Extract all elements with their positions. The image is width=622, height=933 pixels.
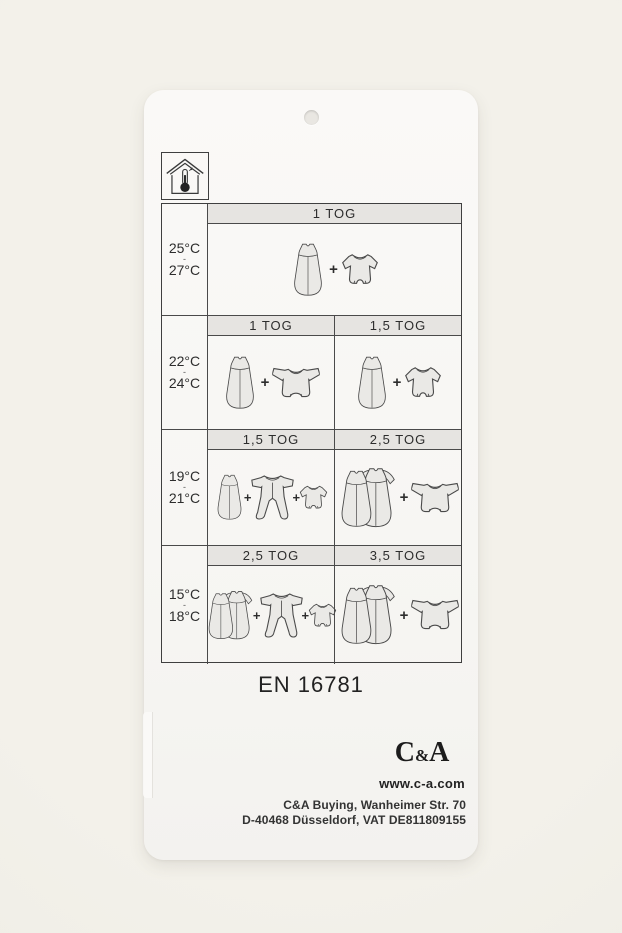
table-row: 15°C-18°C2,5 TOG++3,5 TOG+: [162, 546, 461, 664]
sleepsuit-icon: [251, 473, 294, 522]
tog-cell: 3,5 TOG+: [334, 546, 461, 664]
tog-header: 2,5 TOG: [208, 546, 334, 566]
table-row: 19°C-21°C1,5 TOG++2,5 TOG+: [162, 430, 461, 546]
temperature-range: 25°C-27°C: [162, 204, 208, 315]
sleeping-bag-sleeved-icon: [337, 583, 397, 647]
room-temperature-icon-box: [161, 152, 209, 200]
website-text: www.c-a.com: [379, 776, 465, 791]
tog-header: 1,5 TOG: [335, 316, 461, 336]
sleeping-bag-icon: [354, 352, 390, 414]
plus-sign: +: [400, 607, 409, 624]
bodysuit-short-icon: [299, 484, 328, 511]
tog-cell: 1 TOG+: [208, 204, 461, 315]
plus-sign: +: [400, 489, 409, 506]
row-columns: 1 TOG+: [208, 204, 461, 315]
tog-cell: 1,5 TOG+: [334, 316, 461, 429]
sleeping-bag-sleeved-icon: [337, 466, 397, 530]
temperature-to: 27°C: [169, 263, 200, 278]
tog-header: 3,5 TOG: [335, 546, 461, 566]
temperature-to: 21°C: [169, 491, 200, 506]
tog-header: 1 TOG: [208, 316, 334, 336]
tog-cell: 1,5 TOG++: [208, 430, 334, 545]
tog-header: 2,5 TOG: [335, 430, 461, 450]
garment-combination: +: [208, 224, 461, 315]
bodysuit-short-icon: [341, 252, 379, 287]
punch-hole: [304, 110, 319, 125]
sleepsuit-icon: [260, 591, 303, 640]
photo-background: 25°C-27°C1 TOG+22°C-24°C1 TOG+1,5 TOG+19…: [0, 0, 622, 933]
tog-cell: 1 TOG+: [208, 316, 334, 429]
address-line-1: C&A Buying, Wanheimer Str. 70: [242, 798, 466, 813]
temperature-range: 15°C-18°C: [162, 546, 208, 664]
bodysuit-long-icon: [411, 598, 459, 632]
bodysuit-long-icon: [272, 366, 320, 400]
table-row: 25°C-27°C1 TOG+: [162, 204, 461, 316]
plus-sign: +: [261, 374, 270, 391]
plus-sign: +: [393, 374, 402, 391]
sleeping-bag-icon: [290, 239, 326, 301]
garment-combination: ++: [208, 566, 334, 664]
tog-cell: 2,5 TOG+: [334, 430, 461, 545]
tog-cell: 2,5 TOG++: [208, 546, 334, 664]
garment-combination: +: [208, 336, 334, 429]
bodysuit-short-icon: [404, 365, 442, 400]
temperature-range: 22°C-24°C: [162, 316, 208, 429]
temperature-to: 24°C: [169, 376, 200, 391]
garment-combination: +: [335, 566, 461, 664]
sleeping-bag-sleeved-icon: [205, 588, 254, 643]
garment-combination: +: [335, 450, 461, 545]
ca-logo: C&A: [379, 738, 465, 771]
tog-header: 1,5 TOG: [208, 430, 334, 450]
tog-header: 1 TOG: [208, 204, 461, 224]
sleeping-bag-icon: [222, 352, 258, 414]
bodysuit-long-icon: [411, 481, 459, 515]
garment-combination: +: [335, 336, 461, 429]
plus-sign: +: [329, 261, 338, 278]
row-columns: 1,5 TOG++2,5 TOG+: [208, 430, 461, 545]
sleeping-bag-icon: [214, 470, 245, 525]
address-line-2: D-40468 Düsseldorf, VAT DE811809155: [242, 813, 466, 828]
table-row: 22°C-24°C1 TOG+1,5 TOG+: [162, 316, 461, 430]
company-address: C&A Buying, Wanheimer Str. 70 D-40468 Dü…: [242, 798, 466, 828]
standard-label: EN 16781: [144, 672, 478, 698]
tag-fold-edge: [143, 712, 153, 798]
bodysuit-short-icon: [308, 602, 337, 629]
temperature-range: 19°C-21°C: [162, 430, 208, 545]
ampersand: &: [415, 746, 429, 765]
care-hang-tag: 25°C-27°C1 TOG+22°C-24°C1 TOG+1,5 TOG+19…: [144, 90, 478, 860]
brand-block: C&A www.c-a.com: [379, 738, 465, 791]
house-thermometer-icon: [164, 156, 206, 196]
row-columns: 1 TOG+1,5 TOG+: [208, 316, 461, 429]
tog-table: 25°C-27°C1 TOG+22°C-24°C1 TOG+1,5 TOG+19…: [161, 203, 462, 663]
temperature-to: 18°C: [169, 609, 200, 624]
garment-combination: ++: [208, 450, 334, 545]
row-columns: 2,5 TOG++3,5 TOG+: [208, 546, 461, 664]
